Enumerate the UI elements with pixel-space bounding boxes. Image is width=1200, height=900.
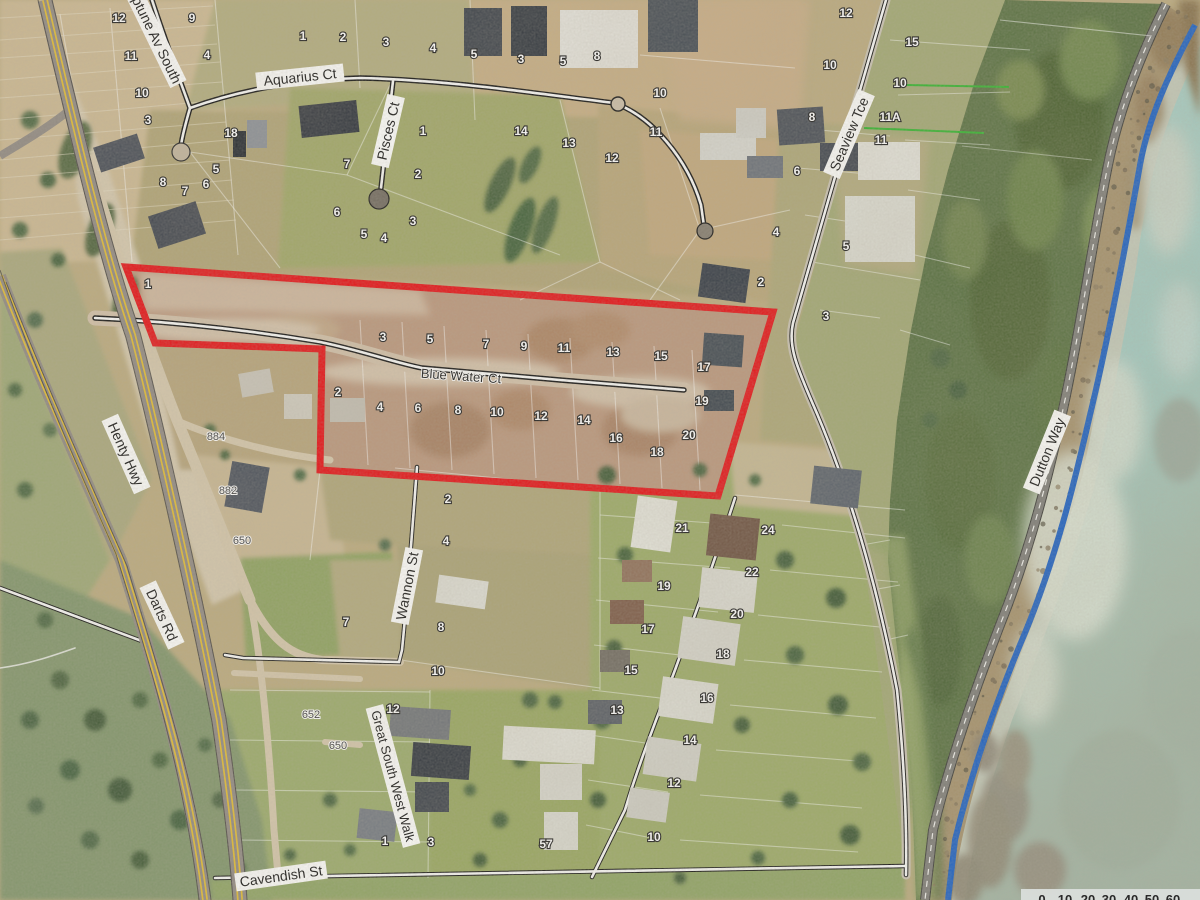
svg-text:20: 20 [1081, 892, 1095, 900]
svg-text:40: 40 [1124, 892, 1138, 900]
svg-text:0: 0 [1038, 892, 1045, 900]
svg-text:60: 60 [1166, 892, 1180, 900]
svg-text:50: 50 [1145, 892, 1159, 900]
svg-text:10: 10 [1058, 892, 1072, 900]
svg-text:30: 30 [1102, 892, 1116, 900]
